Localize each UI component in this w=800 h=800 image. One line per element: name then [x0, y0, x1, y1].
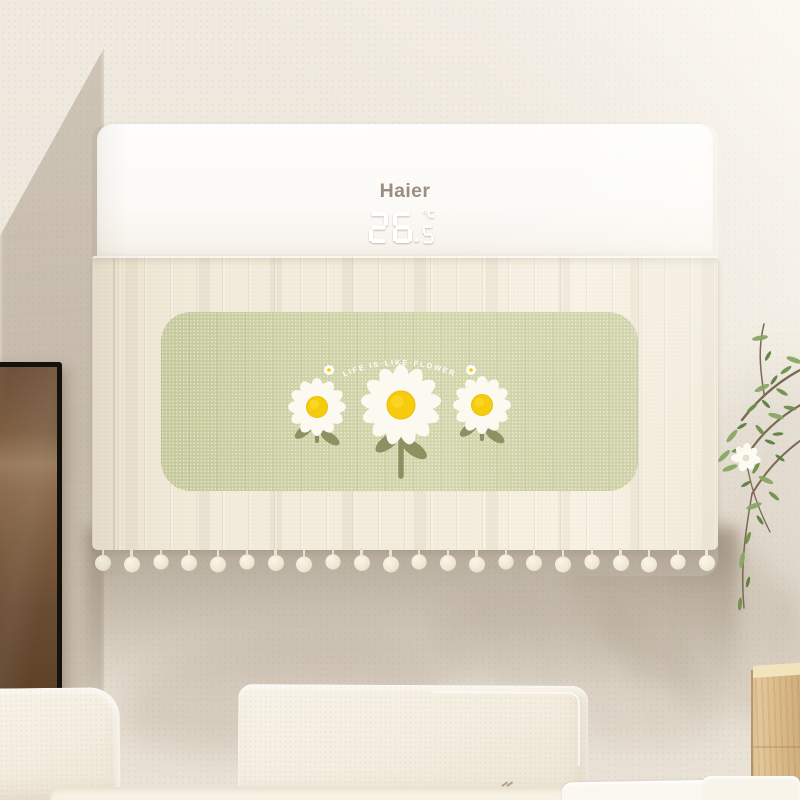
pompom	[555, 557, 571, 573]
sofa-pillow-left	[0, 687, 121, 800]
pompom	[613, 555, 629, 571]
ac-body: Haier ℃	[97, 124, 713, 260]
cover-flower-panel: LIFE IS·LIKE·FLOWER	[161, 312, 638, 491]
sofa-cushion-small	[700, 776, 800, 800]
pompom	[296, 557, 312, 573]
pompom	[95, 555, 111, 571]
haier-logo: Haier	[97, 180, 713, 203]
ac-dust-cover: LIFE IS·LIKE·FLOWER	[92, 256, 718, 550]
pompom	[440, 555, 456, 571]
sofa-seat-cushion	[50, 787, 606, 800]
pompom	[412, 554, 427, 569]
pompom	[239, 554, 254, 569]
sofa-pillow-right	[238, 684, 589, 800]
picture-frame	[0, 362, 62, 694]
pompom	[124, 557, 140, 573]
pompom	[641, 557, 657, 573]
svg-text:℃: ℃	[422, 209, 435, 221]
pompom	[268, 555, 284, 571]
pompom	[153, 554, 168, 569]
pompom	[699, 555, 715, 571]
pompom	[383, 557, 399, 573]
pompom-fringe	[95, 548, 715, 574]
frame-artwork	[0, 367, 57, 689]
pompom	[526, 555, 542, 571]
daisy-artwork: LIFE IS·LIKE·FLOWER	[161, 312, 638, 491]
pompom	[325, 554, 340, 569]
pompom	[584, 554, 599, 569]
pompom	[498, 554, 513, 569]
pompom	[670, 554, 685, 569]
pompom	[469, 557, 485, 573]
air-conditioner-unit: Haier ℃ LIFE IS·LIKE·FLOWER	[92, 124, 718, 576]
product-photo-scene: Haier ℃ LIFE IS·LIKE·FLOWER	[0, 0, 800, 800]
wood-cabinet-top	[753, 663, 800, 678]
pompom	[354, 555, 370, 571]
temperature-display: ℃	[369, 206, 441, 248]
daisy-flowers	[288, 365, 511, 476]
pompom	[210, 557, 226, 573]
pompom	[181, 555, 197, 571]
